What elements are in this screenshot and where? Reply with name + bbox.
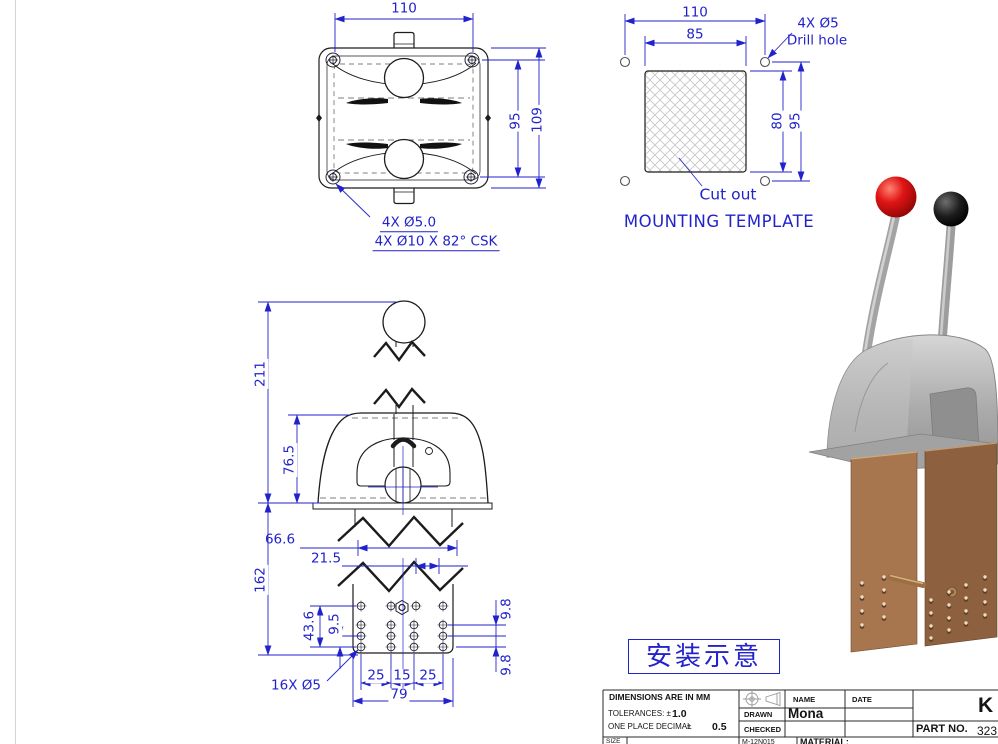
dim-side-79: 79 — [388, 688, 409, 702]
note-top-view-csk: 4X Ø10 X 82° CSK — [373, 235, 500, 251]
title-block-part-no-value: 323 — [977, 725, 997, 737]
dim-template-width-holes: 110 — [680, 6, 710, 20]
mounting-template-drawing — [621, 58, 770, 186]
title-block-material-label: MATERIAL: — [800, 738, 849, 744]
mounting-template-title: MOUNTING TEMPLATE — [622, 214, 816, 231]
dim-template-height-cutout: 80 — [771, 110, 785, 131]
dim-side-25-right: 25 — [417, 669, 438, 683]
title-block-drawing-letter: K — [978, 695, 993, 716]
title-block-one-place-value: 0.5 — [712, 722, 727, 733]
dim-side-total-height: 211 — [254, 359, 268, 389]
title-block-tolerances-value: 1.0 — [672, 709, 687, 720]
dim-side-43-6: 43.6 — [303, 609, 317, 643]
title-block-drawn-label: DRAWN — [744, 711, 772, 719]
dim-top-view-width: 110 — [389, 2, 419, 16]
dim-template-height-holes: 95 — [789, 110, 803, 131]
note-template-cutout: Cut out — [697, 187, 758, 203]
note-template-drill: 4X Ø5 — [795, 17, 840, 31]
title-block-one-place-label: ONE PLACE DECIMAL — [608, 723, 692, 731]
title-block-part-no-label: PART NO. — [916, 724, 968, 735]
title-block-checked-label: CHECKED — [744, 726, 781, 734]
dim-side-15: 15 — [391, 669, 412, 683]
drawing-linework — [0, 0, 998, 744]
title-block-dimensions-note: DIMENSIONS ARE IN MM — [609, 693, 710, 702]
title-block-size-label: SIZE — [606, 739, 620, 744]
dim-side-9-5: 9.5 — [328, 611, 342, 636]
top-view-drawing — [316, 33, 491, 204]
title-block-name-header: NAME — [793, 696, 815, 704]
note-side-holes: 16X Ø5 — [269, 679, 323, 693]
title-block-date-header: DATE — [852, 696, 872, 704]
dim-top-view-height-inner: 95 — [509, 110, 523, 131]
drawing-sheet: 110 95 109 4X Ø5.0 4X Ø10 X 82° CSK 110 … — [0, 0, 998, 744]
note-template-drill-hole: Drill hole — [785, 34, 849, 48]
note-top-view-holes: 4X Ø5.0 — [380, 216, 438, 232]
dim-side-66-6: 66.6 — [263, 533, 297, 547]
dim-side-25-left: 25 — [365, 669, 386, 683]
dim-top-view-height-outer: 109 — [531, 105, 545, 135]
title-block-tolerances-label: TOLERANCES: ± — [608, 710, 671, 718]
installation-note-text: 安装示意 — [646, 644, 762, 670]
dim-side-21-5: 21.5 — [309, 552, 343, 566]
dim-side-9-8-bottom: 9.8 — [500, 652, 514, 677]
title-block-drawn-value: Mona — [788, 707, 823, 721]
dim-template-width-cutout: 85 — [684, 28, 705, 42]
installation-note-box: 安装示意 — [628, 639, 780, 674]
side-view-dimensions — [258, 302, 506, 707]
dim-side-9-8-top: 9.8 — [500, 596, 514, 621]
title-block-plus-minus: ± — [687, 723, 691, 731]
product-3d-render — [809, 177, 998, 653]
title-block-doc-code: M-12N015 — [742, 739, 775, 744]
dim-side-lower-height: 162 — [254, 565, 268, 595]
dim-side-head-height: 76.5 — [283, 443, 297, 477]
